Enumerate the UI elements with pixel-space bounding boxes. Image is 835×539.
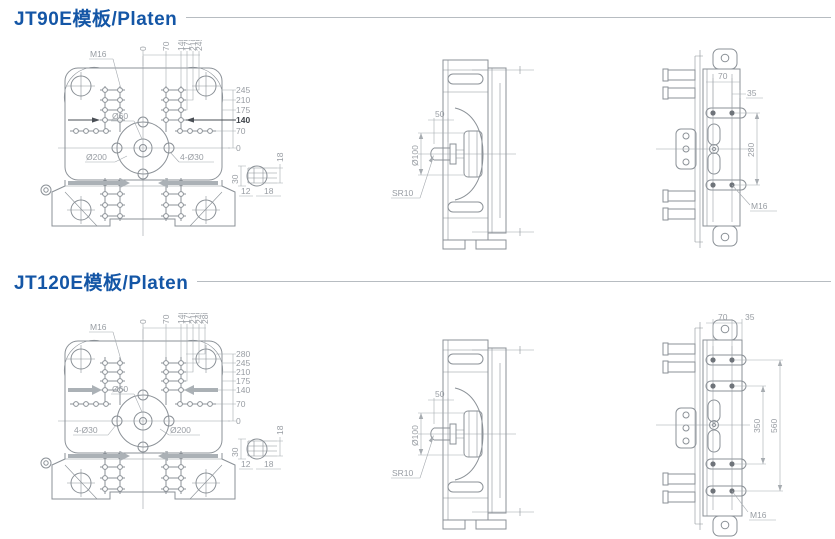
section-title: JT90E模板/Platen (14, 4, 177, 31)
thread-label: M16 (750, 510, 767, 520)
dim-top-70: 70 (161, 314, 171, 324)
jt90e-rear-view: 70 35 280 M16 (650, 44, 832, 258)
dim-right-0: 0 (236, 143, 241, 153)
thread-label: M16 (751, 201, 768, 211)
dim-50: 50 (435, 389, 445, 399)
platen-plate (656, 320, 750, 536)
body-outline (443, 340, 506, 529)
dim-350: 350 (752, 419, 762, 433)
jt120e-rear-view: 70 35 350 560 M16 (650, 312, 832, 539)
detail-dim-12: 12 (241, 186, 251, 196)
dim-right-140: 140 (236, 385, 250, 395)
header-rule-line (186, 17, 831, 18)
leader-labels: M16 Ø60 Ø200 4-Ø30 (85, 49, 214, 162)
body-outline (443, 60, 506, 249)
platen-spec-page: JT90E模板/Platen (0, 0, 835, 539)
dim-35: 35 (747, 88, 757, 98)
dim-70: 70 (718, 71, 728, 81)
detail-insert: 30 18 12 18 (230, 425, 285, 469)
centerlines (58, 329, 230, 509)
thread-label: M16 (90, 49, 107, 59)
dim-right-0: 0 (236, 416, 241, 426)
detail-dim-30: 30 (230, 447, 240, 457)
dim-280: 280 (746, 143, 756, 157)
detail-insert: 30 18 12 18 (230, 152, 285, 196)
thread-label: M16 (90, 322, 107, 332)
jt120e-front-view: 0 70 140 175 210 245 280 280 245 210 175… (30, 313, 320, 539)
bolt-circle-label: Ø200 (86, 152, 107, 162)
dim-top-0: 0 (138, 46, 148, 51)
dim-right-210: 210 (236, 95, 250, 105)
detail-dim-30: 30 (230, 174, 240, 184)
center-hole-label: Ø60 (112, 384, 128, 394)
detail-dim-12: 12 (241, 459, 251, 469)
dim-right-140: 140 (236, 115, 250, 125)
section-title: JT120E模板/Platen (14, 268, 188, 295)
dim-35: 35 (745, 312, 755, 322)
dimensions: 70 35 350 560 M16 (706, 312, 783, 520)
dim-rod-dia: Ø100 (410, 145, 420, 166)
dim-tip-radius: SR10 (392, 188, 414, 198)
dim-top-245: 245 (194, 40, 204, 51)
platen-plate (656, 49, 750, 246)
dimensions: 50 Ø100 SR10 (391, 109, 464, 198)
section-header-jt120e: JT120E模板/Platen (14, 268, 831, 295)
machine-frame (663, 322, 703, 530)
dimension-right: 245 210 175 140 70 0 (186, 85, 250, 153)
center-hole-label: Ø60 (112, 111, 128, 121)
centerlines (418, 66, 534, 236)
dim-right-245: 245 (236, 85, 250, 95)
dim-560: 560 (769, 419, 779, 433)
centerlines (58, 56, 230, 236)
corner-holes-label: 4-Ø30 (180, 152, 204, 162)
dim-top-70: 70 (161, 41, 171, 51)
dim-top-0: 0 (138, 319, 148, 324)
dim-tip-radius: SR10 (392, 468, 414, 478)
centerlines (418, 346, 534, 516)
dim-top-280: 280 (200, 313, 210, 324)
detail-dim-18: 18 (264, 459, 274, 469)
header-rule-line (197, 281, 831, 282)
jt90e-front-view: 0 70 140 175 210 245 245 210 175 140 70 … (30, 40, 320, 266)
dim-70: 70 (718, 312, 728, 322)
section-header-jt90e: JT90E模板/Platen (14, 4, 831, 31)
detail-dim-18-top: 18 (275, 425, 285, 435)
detail-dim-18-top: 18 (275, 152, 285, 162)
detail-dim-18: 18 (264, 186, 274, 196)
dim-right-175: 175 (236, 105, 250, 115)
jt120e-side-view: 50 Ø100 SR10 (388, 328, 540, 536)
dim-right-70: 70 (236, 399, 246, 409)
dim-right-70: 70 (236, 126, 246, 136)
dim-rod-dia: Ø100 (410, 425, 420, 446)
dimension-top: 0 70 140 175 210 245 280 (138, 313, 210, 381)
jt90e-side-view: 50 Ø100 SR10 (388, 48, 540, 256)
dim-50: 50 (435, 109, 445, 119)
bolt-circle-label: Ø200 (170, 425, 191, 435)
corner-holes-label: 4-Ø30 (74, 425, 98, 435)
dimensions: 50 Ø100 SR10 (391, 389, 464, 478)
